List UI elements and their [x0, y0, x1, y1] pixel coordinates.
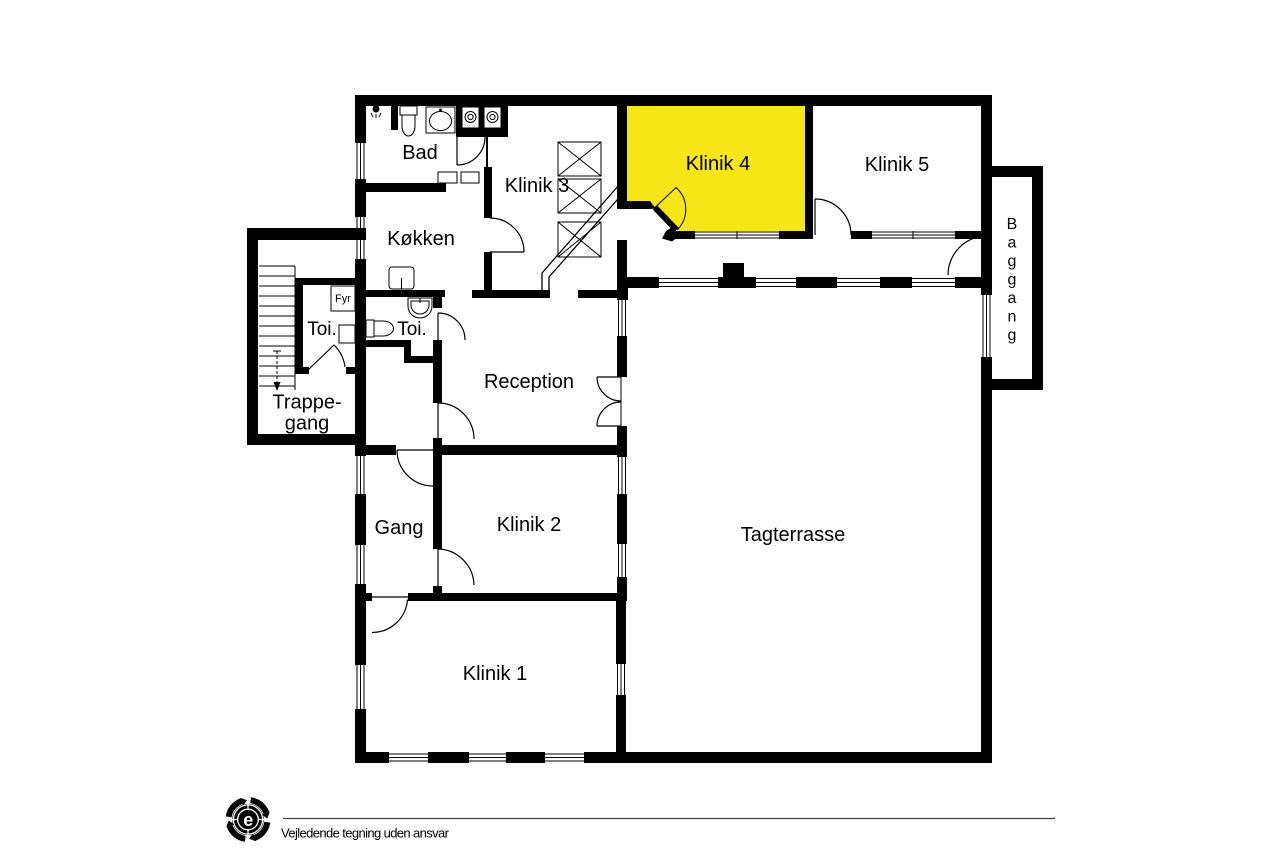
- svg-text:Køkken: Køkken: [387, 228, 455, 250]
- svg-text:n: n: [1008, 309, 1017, 326]
- svg-text:Fyr: Fyr: [335, 293, 351, 305]
- svg-text:Reception: Reception: [484, 371, 574, 393]
- svg-text:B: B: [1007, 216, 1018, 233]
- svg-text:Vejledende tegning uden ansvar: Vejledende tegning uden ansvar: [281, 826, 450, 841]
- svg-text:a: a: [1008, 235, 1017, 252]
- svg-text:gang: gang: [285, 413, 330, 435]
- svg-text:Toi.: Toi.: [307, 319, 337, 340]
- svg-text:Bad: Bad: [402, 142, 438, 164]
- svg-text:Klinik 5: Klinik 5: [865, 154, 929, 176]
- svg-text:Tagterrasse: Tagterrasse: [741, 524, 846, 546]
- svg-text:e: e: [243, 810, 253, 830]
- svg-text:Gang: Gang: [375, 517, 424, 539]
- svg-text:Trappe-: Trappe-: [272, 392, 341, 414]
- svg-text:a: a: [1008, 290, 1017, 307]
- svg-text:g: g: [1008, 253, 1017, 270]
- svg-text:Klinik 3: Klinik 3: [505, 175, 569, 197]
- svg-text:Klinik 1: Klinik 1: [463, 663, 527, 685]
- svg-text:g: g: [1008, 327, 1017, 344]
- svg-text:Klinik 4: Klinik 4: [686, 153, 750, 175]
- svg-text:Klinik 2: Klinik 2: [497, 514, 561, 536]
- svg-text:g: g: [1008, 272, 1017, 289]
- svg-text:Toi.: Toi.: [397, 319, 427, 340]
